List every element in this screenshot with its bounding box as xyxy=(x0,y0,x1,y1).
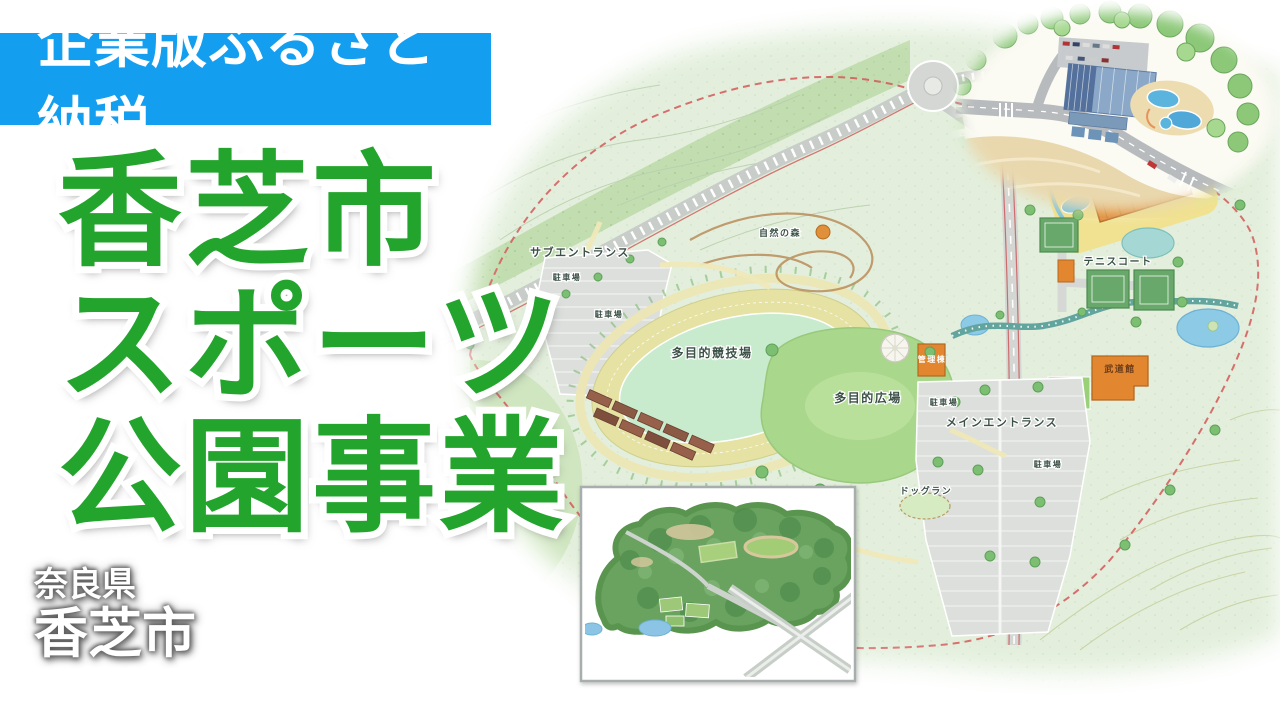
dog-run xyxy=(900,493,950,519)
map-label-12: 駐車場 xyxy=(1034,459,1063,469)
title-line-3: 公園事業 xyxy=(58,412,566,545)
lower-pond xyxy=(1177,309,1239,347)
title-line-2: スポーツ xyxy=(58,279,566,412)
map-label-8: ドッグラン xyxy=(900,485,953,496)
facility-aerial-inset xyxy=(927,0,1280,230)
map-label-4: メインエントランス xyxy=(946,416,1058,429)
location-city: 香芝市 xyxy=(34,604,196,664)
park-birdseye-inset xyxy=(581,487,855,681)
location-block: 奈良県 香芝市 xyxy=(34,566,196,665)
map-label-1: 自然の森 xyxy=(759,227,801,238)
program-banner: 企業版ふるさと納税 xyxy=(0,33,491,125)
map-label-5: テニスコート xyxy=(1084,256,1153,268)
program-banner-label: 企業版ふるさと納税 xyxy=(37,0,491,160)
map-label-7: 管理棟 xyxy=(918,354,947,364)
upper-pond xyxy=(1122,228,1174,258)
map-label-3: 多目的広場 xyxy=(834,390,902,405)
tennis-clubhouse xyxy=(1058,260,1074,282)
trail-viewpoint xyxy=(816,225,830,239)
map-label-6: 武道館 xyxy=(1104,363,1136,374)
map-label-10: 駐車場 xyxy=(595,309,624,319)
map-label-11: 駐車場 xyxy=(930,397,959,407)
main-title: 香芝市 スポーツ 公園事業 xyxy=(58,146,566,545)
canopy-structure xyxy=(881,334,909,362)
location-prefecture: 奈良県 xyxy=(34,566,196,604)
title-line-1: 香芝市 xyxy=(58,146,566,279)
map-label-2: 多目的競技場 xyxy=(671,345,752,360)
